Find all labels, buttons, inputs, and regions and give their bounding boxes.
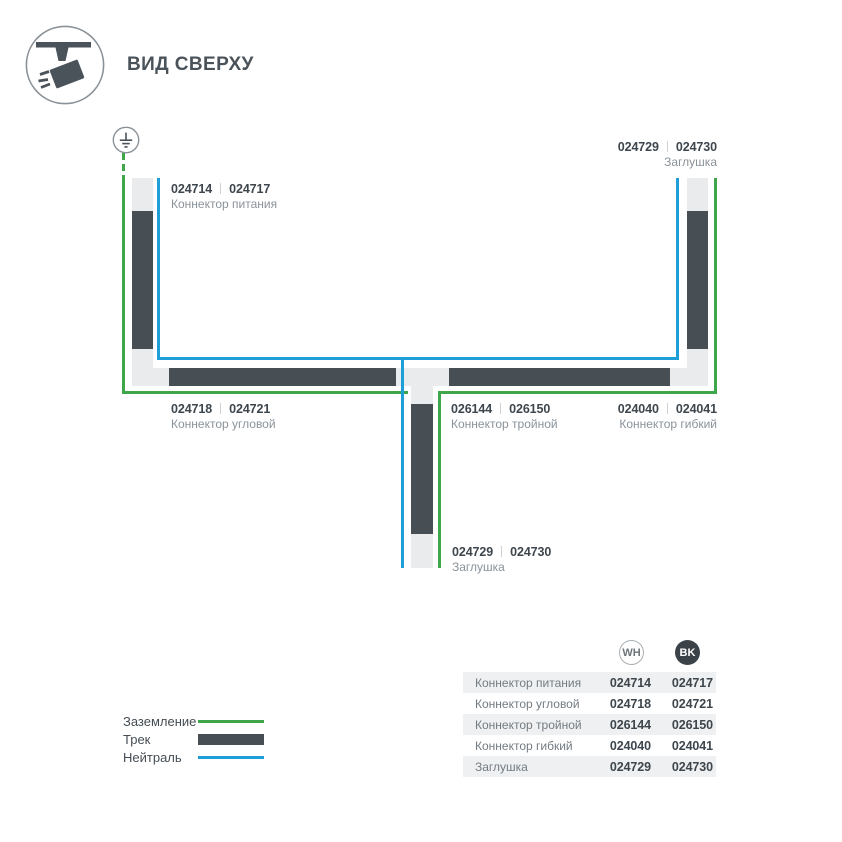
row-part-name: Заглушка (475, 760, 589, 774)
row-wh-code: 024718 (589, 697, 651, 711)
part-name: Коннектор тройной (451, 417, 558, 431)
ground-wire-bottom-left (122, 391, 408, 394)
ground-wire-left-vertical (122, 178, 125, 394)
code-divider (501, 546, 502, 557)
label-endcap-bottom: 024729 024730 Заглушка (452, 544, 551, 574)
row-bk-code: 024721 (651, 697, 713, 711)
row-part-name: Коннектор питания (475, 676, 589, 690)
endcap-top-left (132, 178, 153, 211)
page-title: ВИД СВЕРХУ (127, 54, 254, 76)
article-codes: 024729 024730 (452, 544, 551, 559)
wh-code: 024729 (452, 545, 493, 559)
neutral-wire-horizontal (157, 357, 679, 360)
bk-color-badge: BK (675, 640, 700, 665)
ground-wire-bottom-right (438, 391, 717, 394)
row-wh-code: 024040 (589, 739, 651, 753)
wh-code: 024040 (618, 402, 659, 416)
row-part-name: Коннектор гибкий (475, 739, 589, 753)
part-name: Заглушка (452, 560, 551, 574)
row-wh-code: 026144 (589, 718, 651, 732)
legend-label: Трек (123, 732, 198, 747)
table-row: Заглушка 024729 024730 (463, 756, 716, 777)
track-top-right (449, 368, 670, 386)
row-part-name: Коннектор угловой (475, 697, 589, 711)
flex-connector-right-h (670, 368, 687, 386)
track-right-vertical (687, 211, 708, 349)
wh-color-badge: WH (619, 640, 644, 665)
row-bk-code: 026150 (651, 718, 713, 732)
endcap-top-right (687, 178, 708, 211)
flex-connector-right-v (687, 349, 708, 386)
label-tee-connector: 026144 026150 Коннектор тройной (451, 401, 558, 431)
part-name: Заглушка (618, 155, 717, 169)
bk-code: 026150 (509, 402, 550, 416)
code-divider (220, 403, 221, 414)
row-part-name: Коннектор тройной (475, 718, 589, 732)
code-divider (667, 141, 668, 152)
wh-code: 024729 (618, 140, 659, 154)
article-codes: 024729 024730 (618, 139, 717, 154)
track-top-left (169, 368, 396, 386)
article-table: WH BK Коннектор питания 024714 024717 Ко… (463, 637, 716, 777)
table-row: Коннектор тройной 026144 026150 (463, 714, 716, 735)
code-divider (220, 183, 221, 194)
part-name: Коннектор угловой (171, 417, 276, 431)
label-endcap-top: 024729 024730 Заглушка (618, 139, 717, 169)
table-row: Коннектор питания 024714 024717 (463, 672, 716, 693)
legend-row-ground: Заземление (123, 714, 264, 728)
track-left-vertical (132, 211, 153, 349)
code-divider (667, 403, 668, 414)
tee-connector-stem (411, 386, 433, 404)
legend-row-neutral: Нейтраль (123, 750, 264, 764)
label-corner-connector: 024718 024721 Коннектор угловой (171, 401, 276, 431)
ground-wire-dashed-drop (122, 153, 125, 179)
legend-label: Нейтраль (123, 750, 198, 765)
wh-code: 024714 (171, 182, 212, 196)
row-bk-code: 024730 (651, 760, 713, 774)
neutral-line-swatch (198, 756, 264, 759)
bk-code: 024717 (229, 182, 270, 196)
ground-wire-stem-branch (438, 391, 441, 568)
bk-code: 024041 (676, 402, 717, 416)
corner-connector-left-v (132, 349, 153, 386)
label-flex-connector: 024040 024041 Коннектор гибкий (618, 401, 717, 431)
row-bk-code: 024717 (651, 676, 713, 690)
table-row: Коннектор гибкий 024040 024041 (463, 735, 716, 756)
ground-wire-right-vertical (714, 178, 717, 394)
legend-label: Заземление (123, 714, 198, 729)
legend-row-track: Трек (123, 732, 264, 746)
infographic-canvas: ВИД СВЕРХУ 024714 024717 (0, 0, 842, 842)
row-wh-code: 024729 (589, 760, 651, 774)
wh-code: 026144 (451, 402, 492, 416)
table-header: WH BK (463, 637, 716, 672)
article-codes: 024718 024721 (171, 401, 276, 416)
ground-line-swatch (198, 720, 264, 723)
part-name: Коннектор гибкий (618, 417, 717, 431)
article-codes: 024714 024717 (171, 181, 277, 196)
code-divider (500, 403, 501, 414)
bk-code: 024721 (229, 402, 270, 416)
ground-icon (111, 125, 141, 155)
track-light-badge (25, 25, 105, 105)
article-codes: 024040 024041 (618, 401, 717, 416)
neutral-wire-left-vertical (157, 178, 160, 360)
part-name: Коннектор питания (171, 197, 277, 211)
track-light-icon (25, 25, 105, 105)
neutral-wire-stem-branch (401, 357, 404, 568)
corner-connector-left-h (153, 368, 169, 386)
track-bar-swatch (198, 734, 264, 745)
neutral-wire-right-vertical (676, 178, 679, 360)
endcap-bottom (411, 534, 433, 568)
row-bk-code: 024041 (651, 739, 713, 753)
track-bottom-vertical (411, 404, 433, 534)
label-power-connector: 024714 024717 Коннектор питания (171, 181, 277, 211)
article-codes: 026144 026150 (451, 401, 558, 416)
bk-code: 024730 (676, 140, 717, 154)
wh-code: 024718 (171, 402, 212, 416)
table-row: Коннектор угловой 024718 024721 (463, 693, 716, 714)
row-wh-code: 024714 (589, 676, 651, 690)
legend: Заземление Трек Нейтраль (123, 714, 264, 768)
bk-code: 024730 (510, 545, 551, 559)
